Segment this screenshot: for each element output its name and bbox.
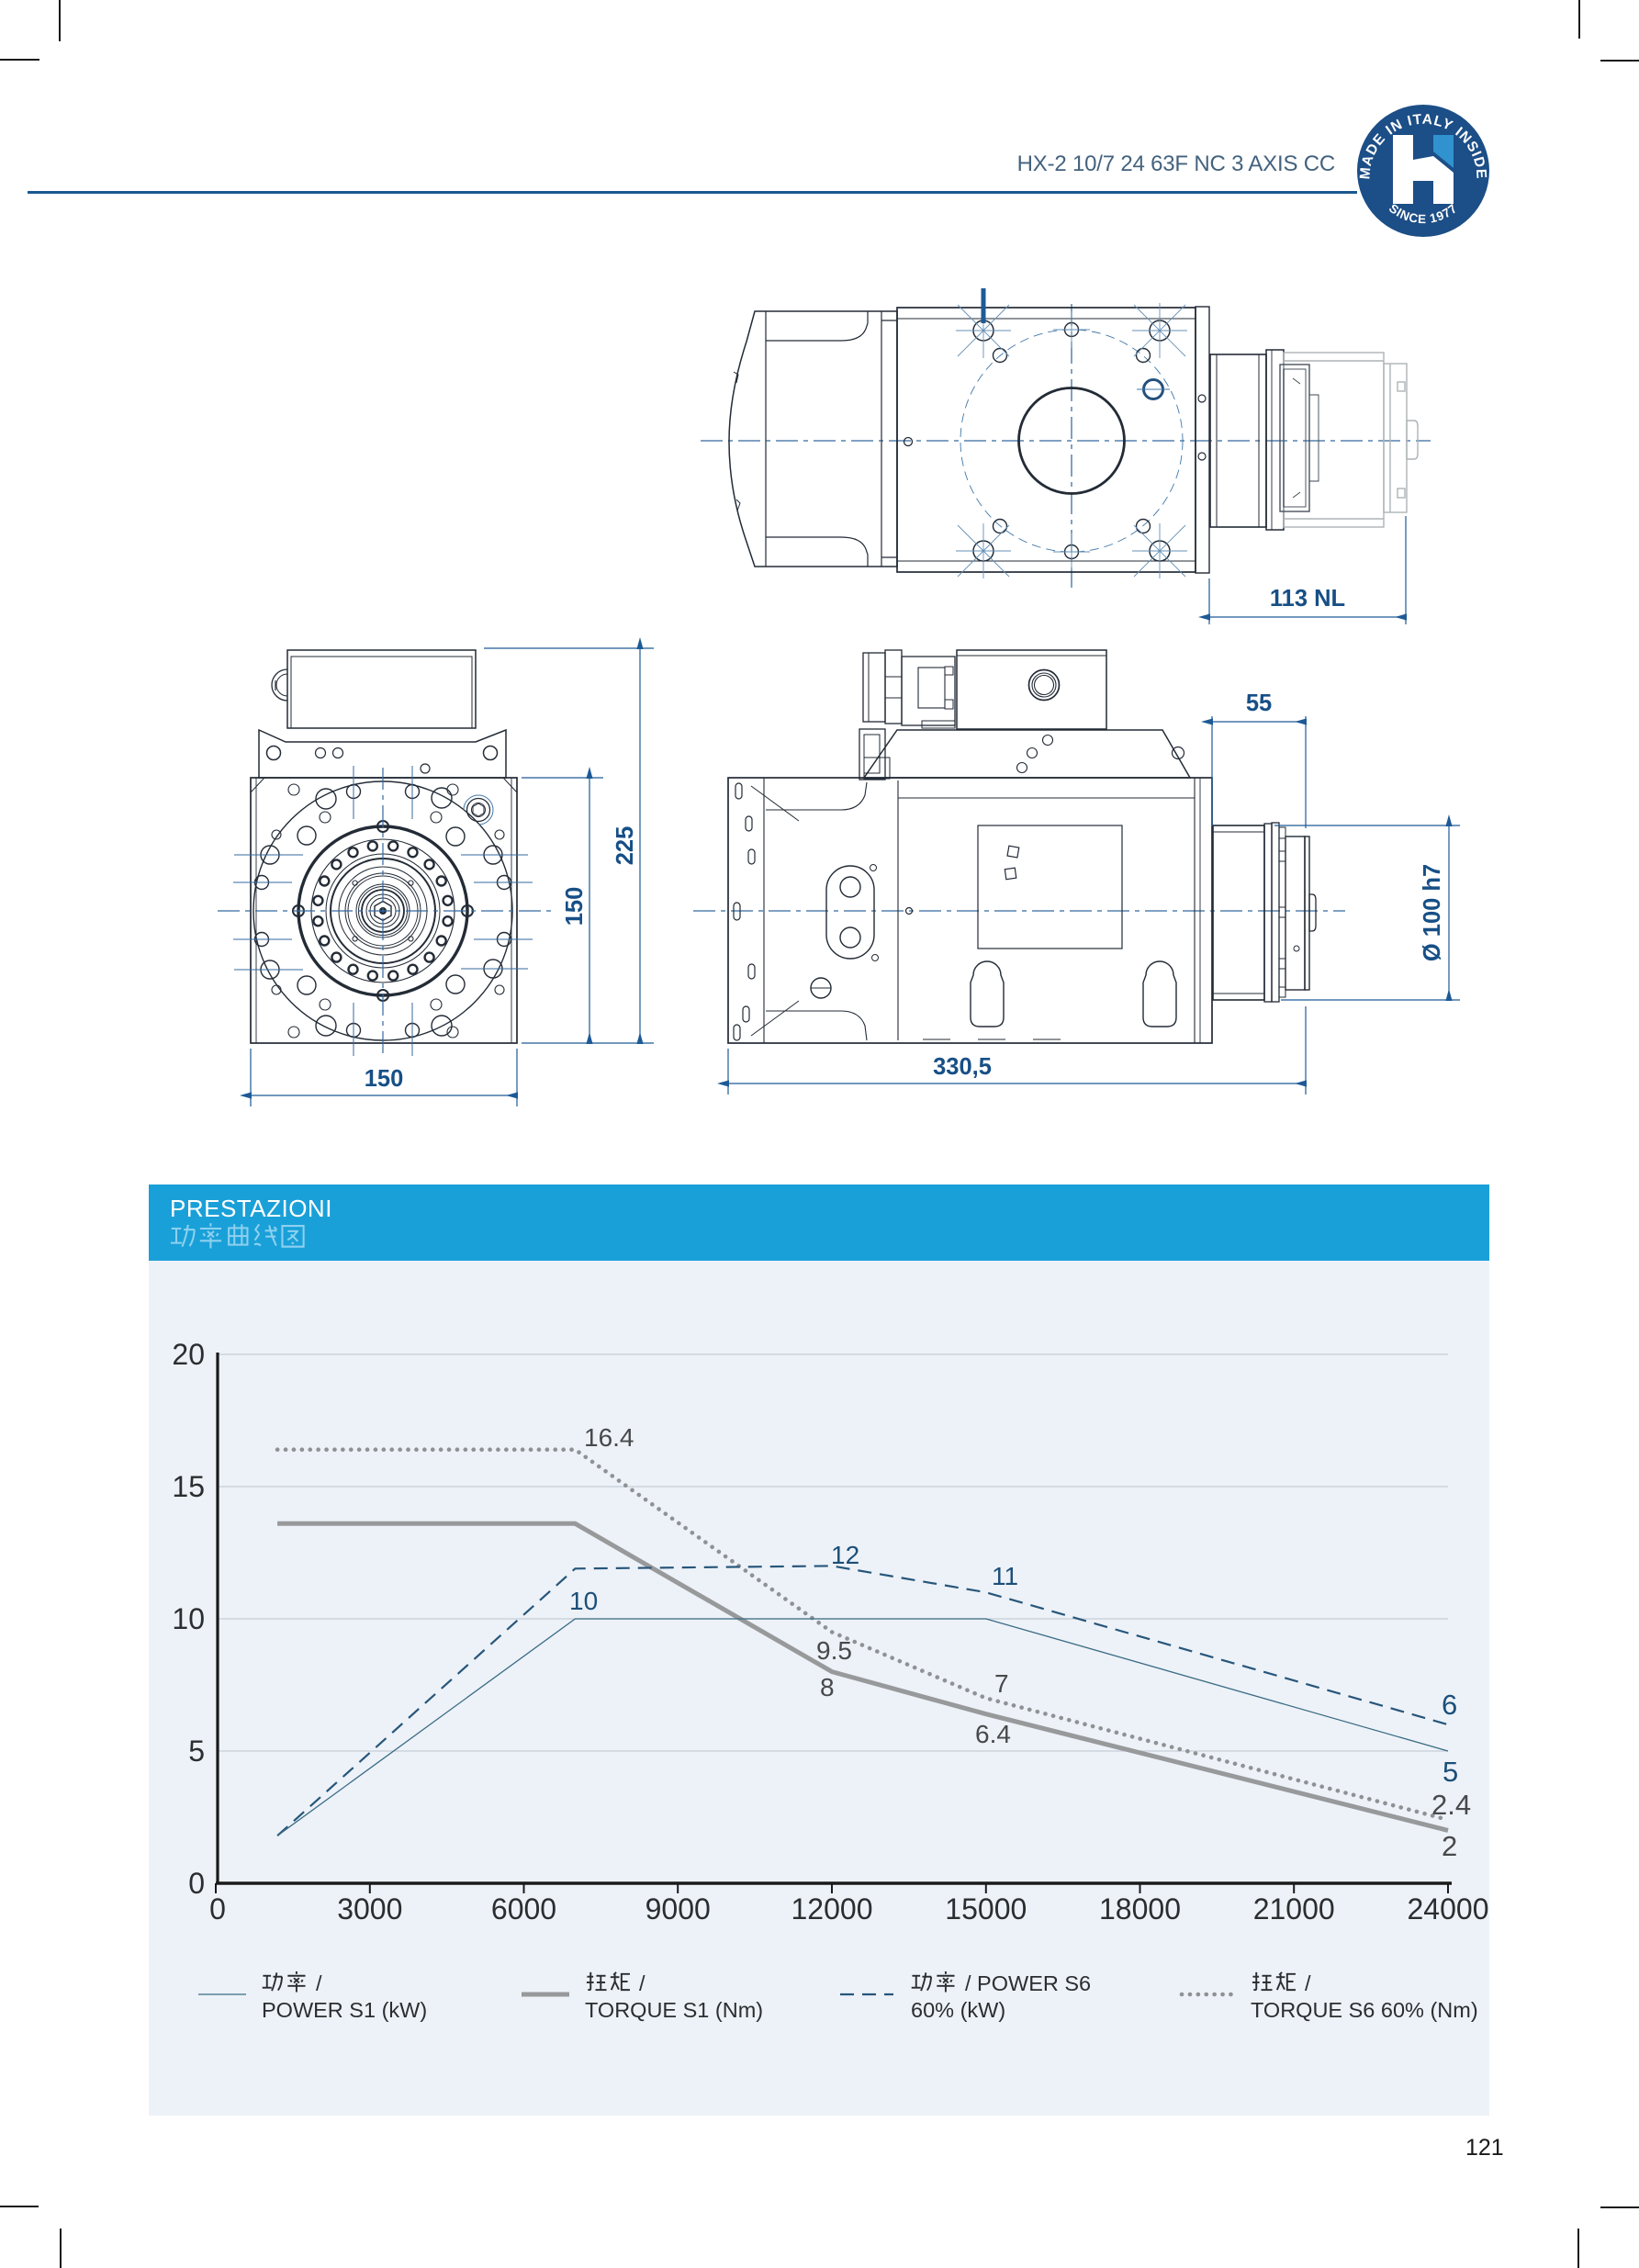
svg-text:TORQUE S1 (Nm): TORQUE S1 (Nm) [585, 1998, 763, 2022]
svg-text:113 NL: 113 NL [1270, 586, 1345, 612]
svg-text:24000: 24000 [1408, 1892, 1489, 1926]
svg-text:12000: 12000 [791, 1892, 873, 1926]
svg-text:9000: 9000 [645, 1892, 711, 1926]
svg-text:POWER S1 (kW): POWER S1 (kW) [262, 1998, 427, 2022]
svg-text:6000: 6000 [491, 1892, 556, 1926]
svg-text:60% (kW): 60% (kW) [911, 1998, 1005, 2022]
svg-text:330,5: 330,5 [933, 1054, 992, 1080]
svg-text:5: 5 [188, 1735, 205, 1768]
svg-text:2.4: 2.4 [1431, 1789, 1471, 1821]
svg-text:/: / [639, 1971, 645, 1995]
svg-text:21000: 21000 [1253, 1892, 1335, 1926]
svg-text:Ø 100 h7: Ø 100 h7 [1420, 864, 1445, 961]
svg-text:10: 10 [172, 1602, 205, 1635]
svg-text:2: 2 [1442, 1830, 1457, 1862]
svg-text:TORQUE S6 60% (Nm): TORQUE S6 60% (Nm) [1251, 1998, 1478, 2022]
svg-text:3000: 3000 [337, 1892, 402, 1926]
svg-text:18000: 18000 [1099, 1892, 1181, 1926]
svg-text:150: 150 [365, 1066, 404, 1092]
svg-text:6: 6 [1442, 1689, 1457, 1721]
svg-text:6.4: 6.4 [975, 1720, 1011, 1748]
svg-text:/ POWER S6: / POWER S6 [965, 1971, 1091, 1995]
svg-text:16.4: 16.4 [584, 1423, 634, 1452]
svg-text:10: 10 [569, 1587, 598, 1615]
svg-text:7: 7 [994, 1669, 1009, 1698]
svg-text:15000: 15000 [945, 1892, 1027, 1926]
svg-text:11: 11 [992, 1562, 1018, 1590]
svg-text:/: / [316, 1971, 322, 1995]
svg-text:0: 0 [209, 1892, 226, 1926]
svg-text:55: 55 [1246, 691, 1272, 716]
svg-text:0: 0 [188, 1867, 205, 1900]
svg-text:20: 20 [172, 1338, 205, 1371]
svg-text:5: 5 [1443, 1756, 1458, 1788]
svg-text:/: / [1305, 1971, 1311, 1995]
svg-text:8: 8 [820, 1673, 835, 1701]
svg-text:12: 12 [831, 1541, 859, 1569]
svg-text:150: 150 [562, 887, 588, 926]
svg-text:225: 225 [612, 826, 638, 866]
svg-text:9.5: 9.5 [816, 1636, 852, 1665]
svg-text:15: 15 [172, 1470, 205, 1503]
